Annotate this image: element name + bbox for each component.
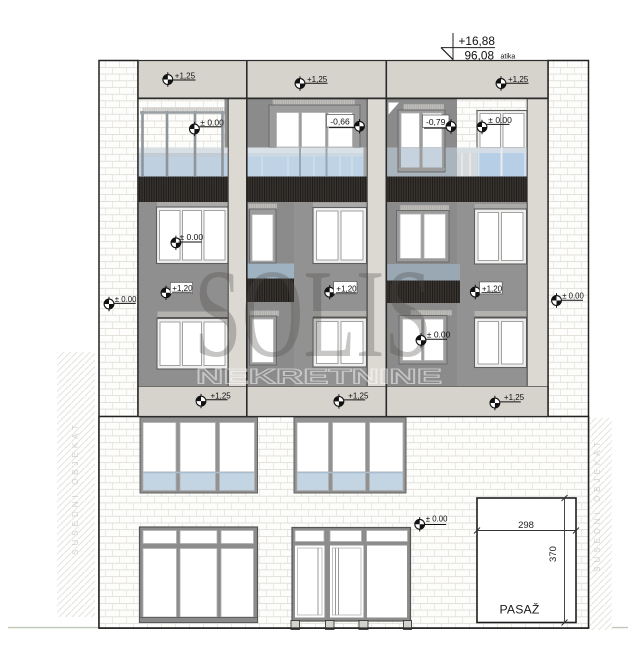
svg-text:-0,79: -0,79	[426, 117, 446, 127]
svg-text:-0,66: -0,66	[330, 116, 350, 126]
svg-text:+1,25: +1,25	[508, 75, 529, 84]
svg-text:± 0.00: ± 0.00	[426, 515, 448, 524]
svg-text:SUSEDNI OBJEKAT: SUSEDNI OBJEKAT	[593, 438, 602, 572]
svg-text:± 0.00: ± 0.00	[488, 115, 512, 125]
svg-text:± 0.00: ± 0.00	[427, 329, 451, 339]
svg-text:NEKRETNINE: NEKRETNINE	[196, 366, 442, 389]
svg-text:+1,25: +1,25	[211, 391, 232, 400]
svg-text:± 0.00: ± 0.00	[180, 232, 204, 242]
svg-text:± 0.00: ± 0.00	[200, 118, 224, 128]
svg-text:+1,20: +1,20	[336, 285, 357, 294]
svg-text:+1,25: +1,25	[348, 392, 369, 401]
svg-text:± 0.00: ± 0.00	[562, 292, 584, 301]
svg-text:+1,25: +1,25	[307, 75, 328, 84]
svg-text:± 0.00: ± 0.00	[115, 295, 137, 304]
svg-text:370: 370	[548, 546, 559, 562]
svg-text:SUSEDNI OBJEKAT: SUSEDNI OBJEKAT	[71, 421, 80, 555]
svg-text:PASAŽ: PASAŽ	[499, 602, 539, 617]
svg-text:SOLIS: SOLIS	[194, 245, 432, 384]
svg-text:298: 298	[518, 520, 534, 531]
svg-text:+1,25: +1,25	[504, 393, 525, 402]
svg-text:atika: atika	[501, 54, 516, 61]
svg-text:96,08: 96,08	[465, 49, 495, 63]
svg-text:+1,25: +1,25	[175, 72, 196, 81]
svg-text:+16,88: +16,88	[459, 34, 496, 48]
svg-text:+1,20: +1,20	[482, 284, 503, 293]
